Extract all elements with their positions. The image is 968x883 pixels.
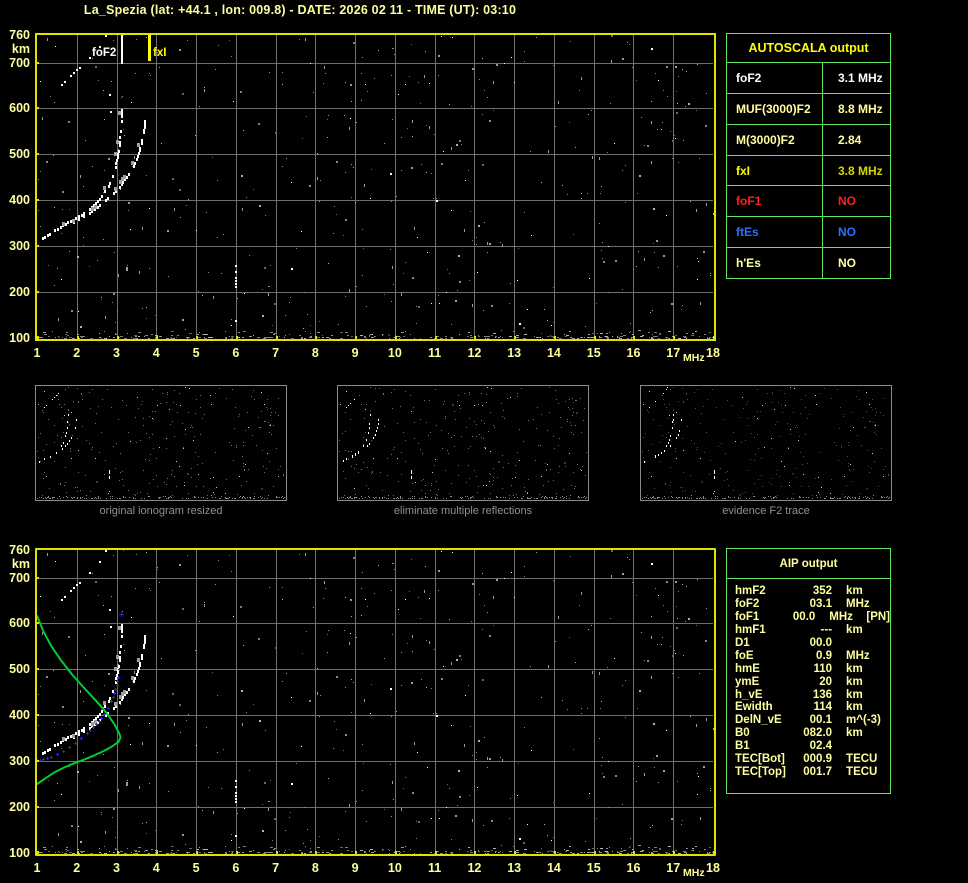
aip-value: --- (794, 624, 832, 637)
aip-extra (886, 689, 890, 702)
y-axis-tick-label: 200 (0, 800, 30, 814)
autoscala-row-fof2: foF23.1 MHz (727, 63, 890, 94)
aip-name: hmF1 (735, 624, 794, 637)
panel-caption-original: original ionogram resized (35, 505, 287, 517)
aip-value: 082.0 (794, 727, 832, 740)
param-value: NO (823, 217, 890, 247)
aip-output-table: AIP output hmF2352kmfoF203.1MHzfoF100.0M… (726, 548, 891, 794)
x-axis-tick-label: 7 (261, 861, 291, 875)
aip-extra (886, 650, 890, 663)
panel-eliminate-reflections (337, 385, 589, 501)
aip-unit: TECU (832, 766, 886, 779)
aip-unit: km (832, 701, 886, 714)
param-label: fxI (727, 156, 823, 186)
autoscala-row-fof1: foF1NO (727, 186, 890, 217)
x-axis-tick-label: 15 (579, 861, 609, 875)
aip-row-fof2: foF203.1MHz (735, 598, 890, 611)
param-value: NO (823, 186, 890, 216)
x-axis-tick-label: 5 (181, 346, 211, 360)
x-axis-tick-label: 1 (22, 346, 52, 360)
autoscala-window: La_Spezia (lat: +44.1 , lon: 009.8) - DA… (0, 0, 968, 883)
autoscala-table-header: AUTOSCALA output (727, 34, 890, 63)
x-axis-tick-label: 9 (340, 861, 370, 875)
x-axis-tick-label: 2 (62, 346, 92, 360)
y-axis-unit-label: km (0, 42, 30, 56)
x-axis-tick-label: 6 (221, 861, 251, 875)
aip-unit: km (832, 585, 886, 598)
x-axis-tick-label: 13 (499, 861, 529, 875)
aip-unit: m^(-3) (832, 714, 886, 727)
y-axis-tick-label: 600 (0, 616, 30, 630)
x-axis-tick-label: 7 (261, 346, 291, 360)
autoscala-row-h-es: h'EsNO (727, 248, 890, 278)
aip-extra (886, 727, 890, 740)
fof2-marker-label: foF2 (92, 47, 116, 59)
param-value: NO (823, 248, 890, 278)
x-axis-tick-label: 3 (102, 861, 132, 875)
x-axis-tick-label: 10 (380, 861, 410, 875)
aip-value: 110 (794, 663, 832, 676)
aip-row-b1: B102.4 (735, 740, 890, 753)
aip-value: 114 (794, 701, 832, 714)
param-value: 8.8 MHz (823, 94, 890, 124)
x-axis-tick-label: 14 (539, 346, 569, 360)
y-axis-tick-label: 500 (0, 662, 30, 676)
aip-unit: km (832, 624, 886, 637)
aip-unit: km (832, 727, 886, 740)
aip-name: hmF2 (735, 585, 794, 598)
aip-unit (832, 740, 886, 753)
aip-row-foe: foE0.9MHz (735, 650, 890, 663)
aip-value: 03.1 (794, 598, 832, 611)
aip-extra (886, 766, 890, 779)
aip-name: TEC[Top] (735, 766, 794, 779)
aip-row-tec-top-: TEC[Top]001.7TECU (735, 766, 890, 779)
aip-value: 000.9 (794, 753, 832, 766)
station-title: La_Spezia (lat: +44.1 , lon: 009.8) - DA… (0, 3, 600, 17)
aip-row-ewidth: Ewidth114km (735, 701, 890, 714)
aip-row-yme: ymE20km (735, 676, 890, 689)
x-axis-tick-label: 12 (459, 346, 489, 360)
x-axis-tick-label: 14 (539, 861, 569, 875)
aip-extra (886, 624, 890, 637)
panel-evidence-f2-trace (640, 385, 892, 501)
aip-name: hmE (735, 663, 794, 676)
aip-name: TEC[Bot] (735, 753, 794, 766)
aip-table-header: AIP output (727, 549, 890, 579)
x-axis-unit-label: MHz (683, 867, 705, 879)
param-value: 3.1 MHz (823, 63, 890, 93)
x-axis-tick-label: 5 (181, 861, 211, 875)
x-axis-tick-label: 2 (62, 861, 92, 875)
y-axis-tick-label: 300 (0, 754, 30, 768)
fxi-marker-label: fxI (153, 47, 166, 59)
aip-name: D1 (735, 637, 794, 650)
y-axis-tick-label: 400 (0, 708, 30, 722)
aip-extra (886, 585, 890, 598)
param-value: 3.8 MHz (823, 156, 890, 186)
x-axis-tick-label: 6 (221, 346, 251, 360)
aip-row-hmf2: hmF2352km (735, 585, 890, 598)
y-axis-tick-label: 700 (0, 56, 30, 70)
aip-extra (886, 701, 890, 714)
aip-extra (886, 663, 890, 676)
x-axis-tick-label: 16 (618, 861, 648, 875)
param-label: MUF(3000)F2 (727, 94, 823, 124)
autoscala-row-m-3000-f2: M(3000)F22.84 (727, 125, 890, 156)
aip-extra (886, 676, 890, 689)
x-axis-tick-label: 15 (579, 346, 609, 360)
x-axis-tick-label: 4 (141, 346, 171, 360)
y-axis-tick-label: 200 (0, 285, 30, 299)
aip-table-body: hmF2352kmfoF203.1MHzfoF100.0MHz[PN]hmF1-… (727, 579, 890, 779)
bottom-ionogram-plot (35, 548, 716, 856)
aip-row-deln-ve: DelN_vE00.1m^(-3) (735, 714, 890, 727)
aip-value: 136 (794, 689, 832, 702)
autoscala-row-fxi: fxI3.8 MHz (727, 156, 890, 187)
param-value: 2.84 (823, 125, 890, 155)
x-axis-unit-label: MHz (683, 352, 705, 364)
aip-value: 001.7 (794, 766, 832, 779)
aip-unit: MHz (832, 598, 886, 611)
autoscala-row-muf-3000-f2: MUF(3000)F28.8 MHz (727, 94, 890, 125)
autoscala-output-table: AUTOSCALA output foF23.1 MHzMUF(3000)F28… (726, 33, 891, 279)
x-axis-tick-label: 11 (420, 346, 450, 360)
aip-name: DelN_vE (735, 714, 794, 727)
aip-row-hme: hmE110km (735, 663, 890, 676)
x-axis-tick-label: 16 (618, 346, 648, 360)
param-label: M(3000)F2 (727, 125, 823, 155)
x-axis-tick-label: 8 (300, 346, 330, 360)
aip-name: Ewidth (735, 701, 794, 714)
aip-row-h-ve: h_vE136km (735, 689, 890, 702)
param-label: foF2 (727, 63, 823, 93)
y-axis-tick-label: 760 (0, 28, 30, 42)
aip-name: h_vE (735, 689, 794, 702)
aip-unit: km (832, 663, 886, 676)
x-axis-tick-label: 4 (141, 861, 171, 875)
param-label: h'Es (727, 248, 823, 278)
y-axis-unit-label: km (0, 557, 30, 571)
aip-row-d1: D100.0 (735, 637, 890, 650)
panel-original-ionogram (35, 385, 287, 501)
aip-unit (832, 637, 886, 650)
aip-unit: MHz (815, 611, 862, 624)
top-ionogram-plot (35, 33, 716, 341)
panel-caption-evidence: evidence F2 trace (640, 505, 892, 517)
aip-extra (886, 753, 890, 766)
aip-name: B1 (735, 740, 794, 753)
y-axis-tick-label: 760 (0, 543, 30, 557)
aip-extra (886, 714, 890, 727)
x-axis-tick-label: 10 (380, 346, 410, 360)
x-axis-tick-label: 13 (499, 346, 529, 360)
y-axis-tick-label: 300 (0, 239, 30, 253)
y-axis-tick-label: 400 (0, 193, 30, 207)
aip-value: 00.0 (784, 611, 815, 624)
aip-name: foE (735, 650, 794, 663)
aip-name: ymE (735, 676, 794, 689)
y-axis-tick-label: 700 (0, 571, 30, 585)
aip-value: 20 (794, 676, 832, 689)
aip-extra (886, 740, 890, 753)
x-axis-tick-label: 3 (102, 346, 132, 360)
x-axis-tick-label: 8 (300, 861, 330, 875)
x-axis-tick-label: 12 (459, 861, 489, 875)
aip-value: 02.4 (794, 740, 832, 753)
aip-row-fof1: foF100.0MHz[PN] (735, 611, 890, 624)
x-axis-tick-label: 11 (420, 861, 450, 875)
aip-value: 00.0 (794, 637, 832, 650)
aip-row-b0: B0082.0km (735, 727, 890, 740)
aip-row-tec-bot-: TEC[Bot]000.9TECU (735, 753, 890, 766)
param-label: ftEs (727, 217, 823, 247)
aip-extra (886, 598, 890, 611)
aip-row-hmf1: hmF1---km (735, 624, 890, 637)
aip-value: 0.9 (794, 650, 832, 663)
panel-caption-eliminate: eliminate multiple reflections (337, 505, 589, 517)
aip-unit: km (832, 676, 886, 689)
aip-unit: MHz (832, 650, 886, 663)
y-axis-tick-label: 100 (0, 846, 30, 860)
aip-name: foF2 (735, 598, 794, 611)
y-axis-tick-label: 100 (0, 331, 30, 345)
x-axis-tick-label: 9 (340, 346, 370, 360)
aip-unit: TECU (832, 753, 886, 766)
param-label: foF1 (727, 186, 823, 216)
aip-extra (886, 637, 890, 650)
y-axis-tick-label: 500 (0, 147, 30, 161)
autoscala-row-ftes: ftEsNO (727, 217, 890, 248)
aip-extra: [PN] (862, 611, 890, 624)
aip-unit: km (832, 689, 886, 702)
y-axis-tick-label: 600 (0, 101, 30, 115)
aip-value: 352 (794, 585, 832, 598)
x-axis-tick-label: 1 (22, 861, 52, 875)
aip-name: foF1 (735, 611, 784, 624)
aip-name: B0 (735, 727, 794, 740)
aip-value: 00.1 (794, 714, 832, 727)
